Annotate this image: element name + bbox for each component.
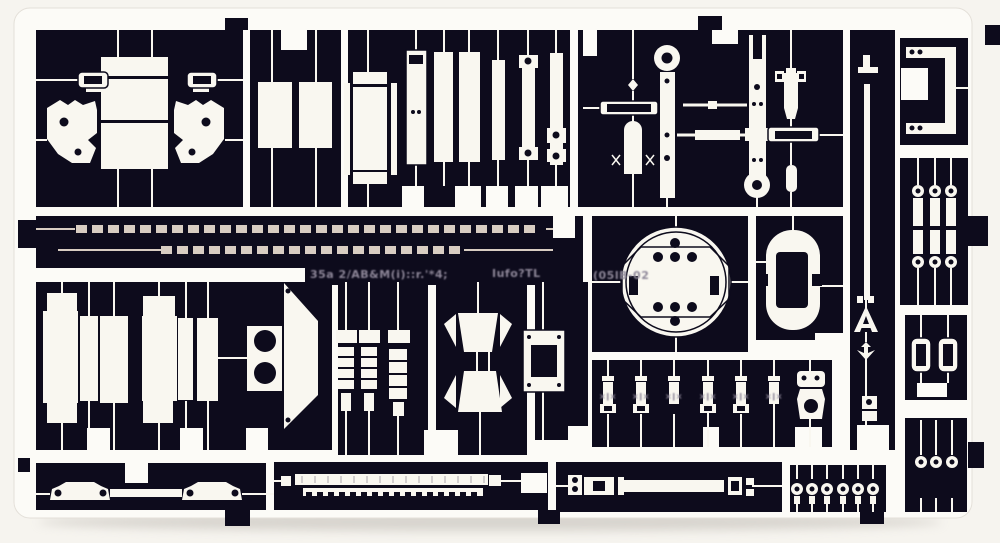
fret-figure: 35a 2/AB&M(i)::r.'*4;Iufo?TL(05lB-02×ǀ××… <box>0 0 1000 543</box>
etched-stamp: ×ǀ× <box>599 392 617 401</box>
photo-etch-fret-sheet: 35a 2/AB&M(i)::r.'*4;Iufo?TL(05lB-02×ǀ××… <box>0 0 1000 543</box>
etched-stamp: ×ǀ× <box>699 392 717 401</box>
etched-stamp: (05lB-02 <box>593 269 649 282</box>
etched-stamp: 35a 2/AB&M(i)::r.'*4; <box>310 268 448 281</box>
etched-stamp: ×ǀ× <box>732 392 750 401</box>
etched-stamp: Iufo?TL <box>492 267 541 280</box>
etched-stamp: ×ǀ× <box>665 392 683 401</box>
etched-stamp: ×ǀ× <box>765 392 783 401</box>
etched-stamp: ×ǀ× <box>632 392 650 401</box>
